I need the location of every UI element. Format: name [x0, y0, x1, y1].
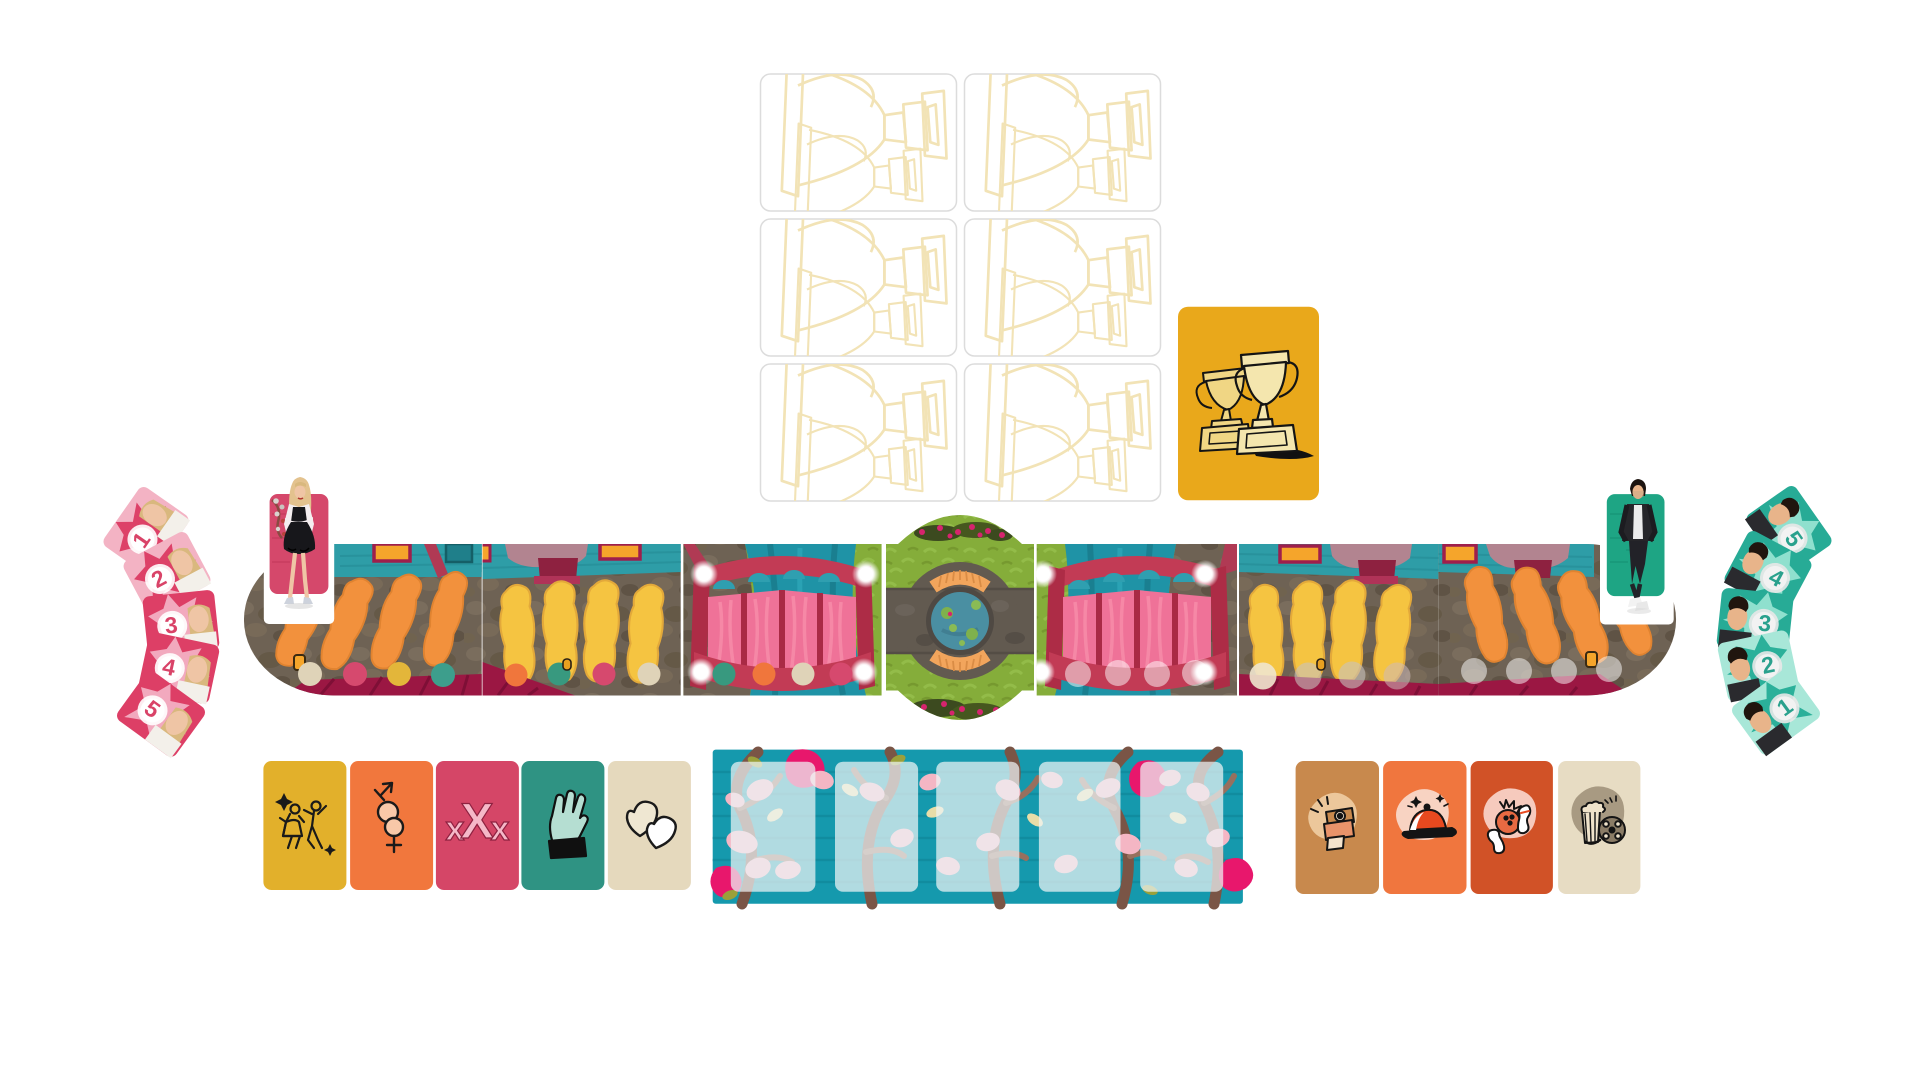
svg-text:x: x: [491, 810, 510, 848]
svg-text:3: 3: [1757, 609, 1772, 636]
svg-text:X: X: [460, 793, 493, 849]
